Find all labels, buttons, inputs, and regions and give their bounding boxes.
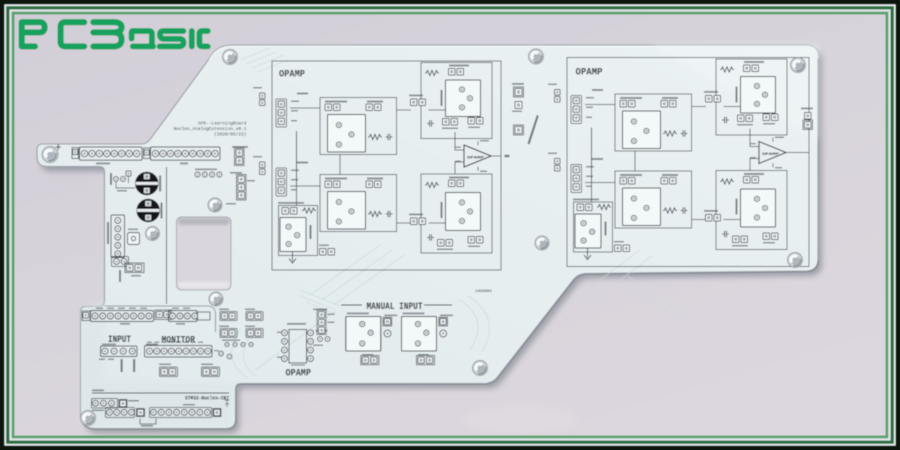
- svg-text:OPAMP: OPAMP: [467, 156, 484, 160]
- svg-text:OPAMP: OPAMP: [286, 369, 312, 380]
- svg-text:OPAMP: OPAMP: [279, 70, 305, 81]
- svg-text:OPAMP: OPAMP: [576, 68, 603, 79]
- svg-text:OPAMP: OPAMP: [762, 153, 779, 157]
- svg-text:STM32-Nucleo-CN7: STM32-Nucleo-CN7: [185, 395, 229, 402]
- svg-text:(2020/05/23): (2020/05/23): [214, 131, 246, 137]
- svg-text:MANUAL INPUT: MANUAL INPUT: [367, 302, 423, 313]
- svg-text:MONITOR: MONITOR: [162, 335, 196, 347]
- svg-text:Nucleo_AnalogExtension_v0.1: Nucleo_AnalogExtension_v0.1: [174, 126, 247, 132]
- svg-text:APS--LearningBoard: APS--LearningBoard: [198, 120, 247, 126]
- svg-text:1486093: 1486093: [475, 290, 492, 294]
